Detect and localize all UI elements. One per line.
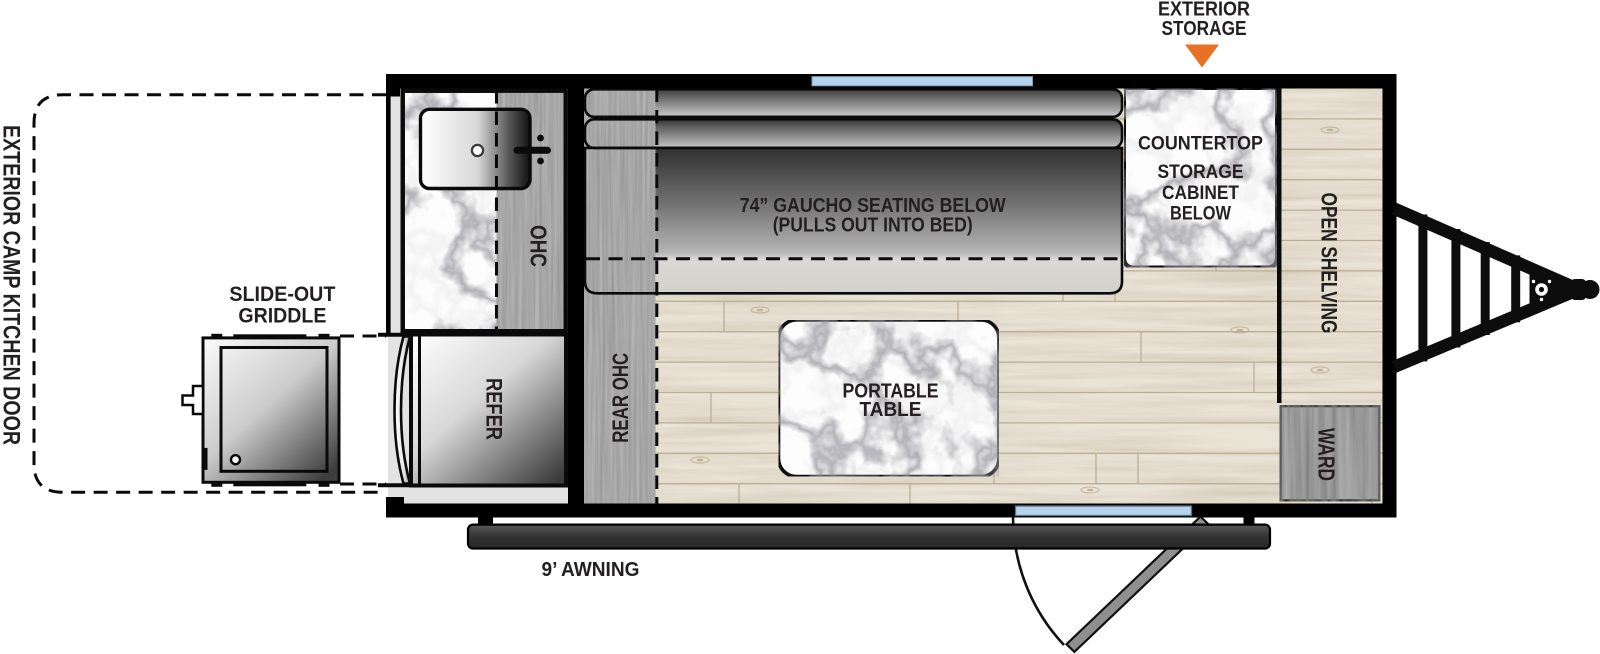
svg-text:WARD: WARD bbox=[1314, 428, 1340, 481]
svg-text:REFER: REFER bbox=[482, 378, 507, 440]
svg-text:REAR OHC: REAR OHC bbox=[608, 353, 633, 443]
svg-text:OHC: OHC bbox=[526, 225, 552, 267]
svg-text:STORAGE: STORAGE bbox=[1158, 162, 1244, 183]
svg-text:COUNTERTOP: COUNTERTOP bbox=[1138, 133, 1263, 154]
svg-text:CABINET: CABINET bbox=[1162, 183, 1239, 204]
svg-text:(PULLS OUT INTO BED): (PULLS OUT INTO BED) bbox=[773, 214, 973, 236]
svg-text:GRIDDLE: GRIDDLE bbox=[238, 304, 326, 327]
svg-text:9’ AWNING: 9’ AWNING bbox=[542, 559, 640, 581]
svg-text:BELOW: BELOW bbox=[1170, 204, 1231, 225]
svg-text:OPEN SHELVING: OPEN SHELVING bbox=[1317, 193, 1342, 334]
svg-text:TABLE: TABLE bbox=[860, 399, 922, 421]
svg-text:STORAGE: STORAGE bbox=[1162, 18, 1247, 40]
svg-text:EXTERIOR CAMP KITCHEN DOOR: EXTERIOR CAMP KITCHEN DOOR bbox=[0, 125, 25, 445]
svg-text:SLIDE-OUT: SLIDE-OUT bbox=[229, 283, 335, 306]
